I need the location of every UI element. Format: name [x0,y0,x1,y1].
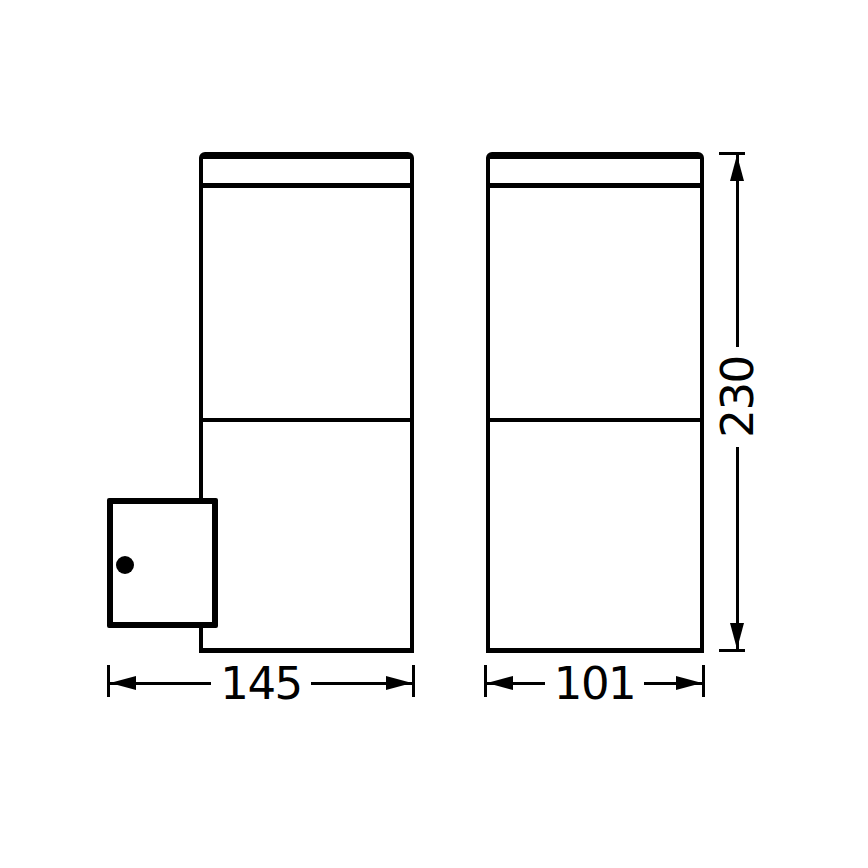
front-view-top-cap [486,152,704,188]
dim-145-value: 145 [211,661,310,707]
side-view-diffuser-seam-line [199,418,414,422]
dim-101-label-wrap: 101 [487,661,702,707]
front-view-diffuser-seam-line [486,418,704,422]
dim-230-value: 230 [715,347,761,446]
dim-230-arrowhead-top-icon [730,155,744,181]
dim-145-extension-tick-right [412,665,415,697]
technical-drawing-canvas: 145 101 230 [0,0,868,868]
dim-230-extension-tick-bottom [719,649,745,652]
dim-230-label-wrap: 230 [715,337,761,457]
screw-head-icon [116,556,134,574]
dim-101-value: 101 [545,661,644,707]
dim-145-label-wrap: 145 [110,661,412,707]
dim-101-extension-tick-right [702,665,705,697]
dim-230-arrowhead-bottom-icon [730,623,744,649]
side-view-top-cap [199,152,414,188]
